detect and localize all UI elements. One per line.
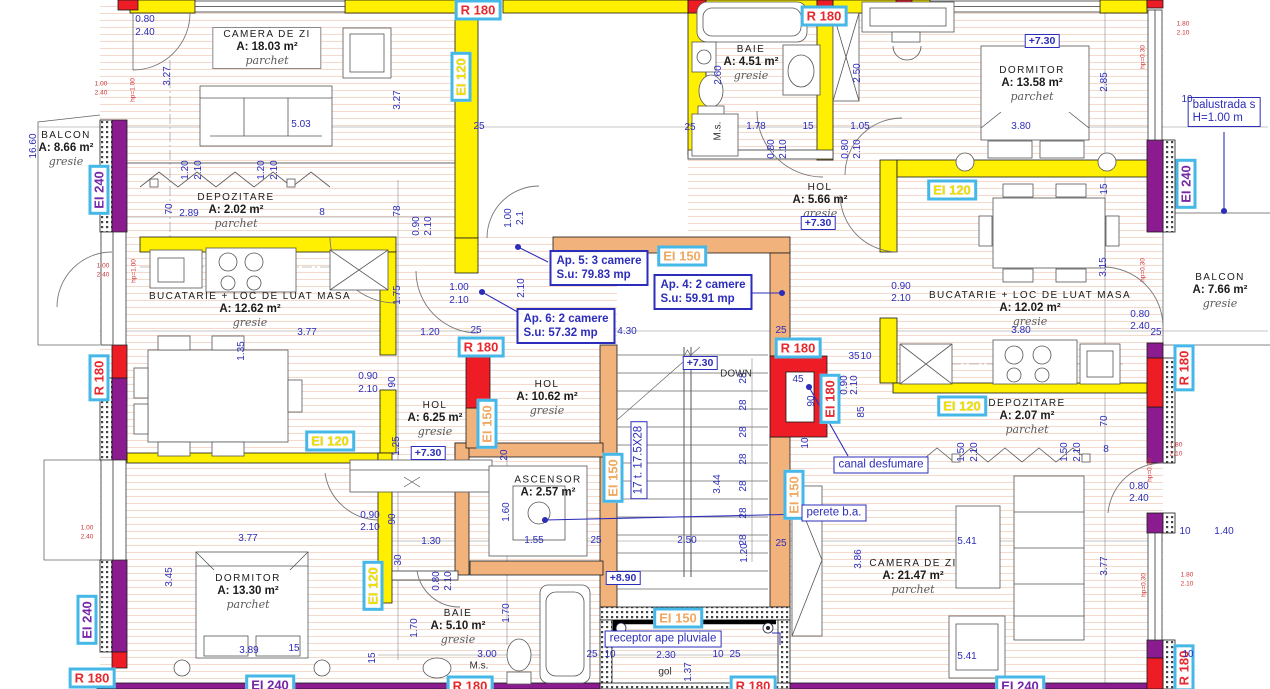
- floor-plan: CAMERA DE ZI A: 18.03 m² parchet BALCON …: [0, 0, 1270, 689]
- plan-drawing: [0, 0, 1270, 689]
- smoke-duct-shaft: [786, 372, 814, 422]
